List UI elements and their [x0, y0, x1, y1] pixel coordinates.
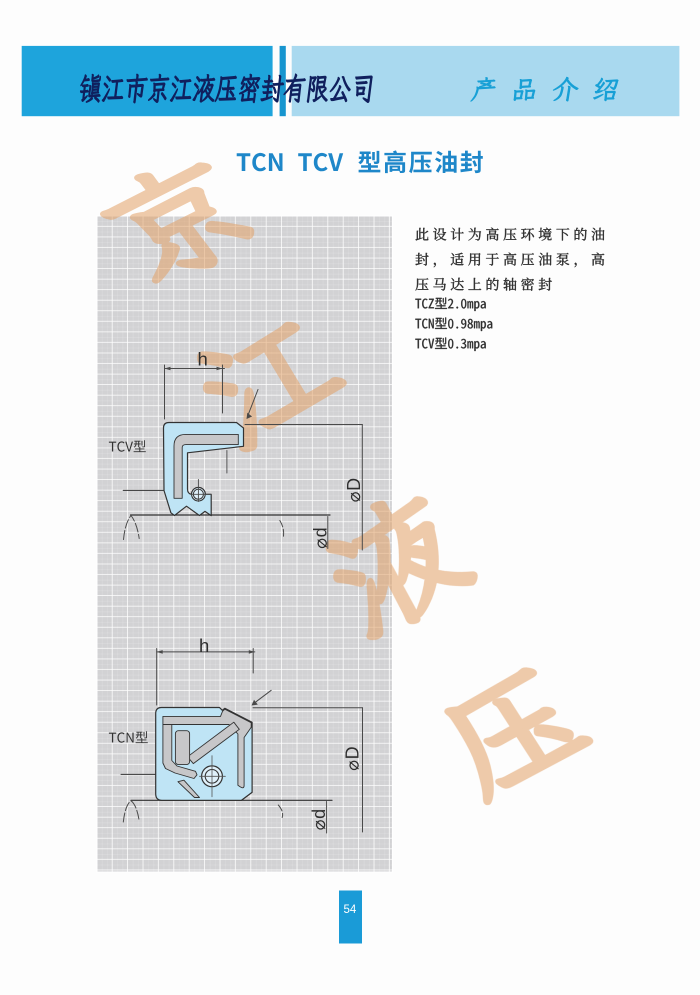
svg-text:54: 54 — [344, 904, 357, 916]
svg-text:D: D — [343, 746, 363, 759]
svg-text:D: D — [344, 478, 364, 491]
svg-text:d: d — [309, 809, 329, 819]
svg-text:h: h — [198, 349, 208, 370]
svg-text:d: d — [311, 527, 331, 537]
svg-text:h: h — [199, 635, 209, 656]
